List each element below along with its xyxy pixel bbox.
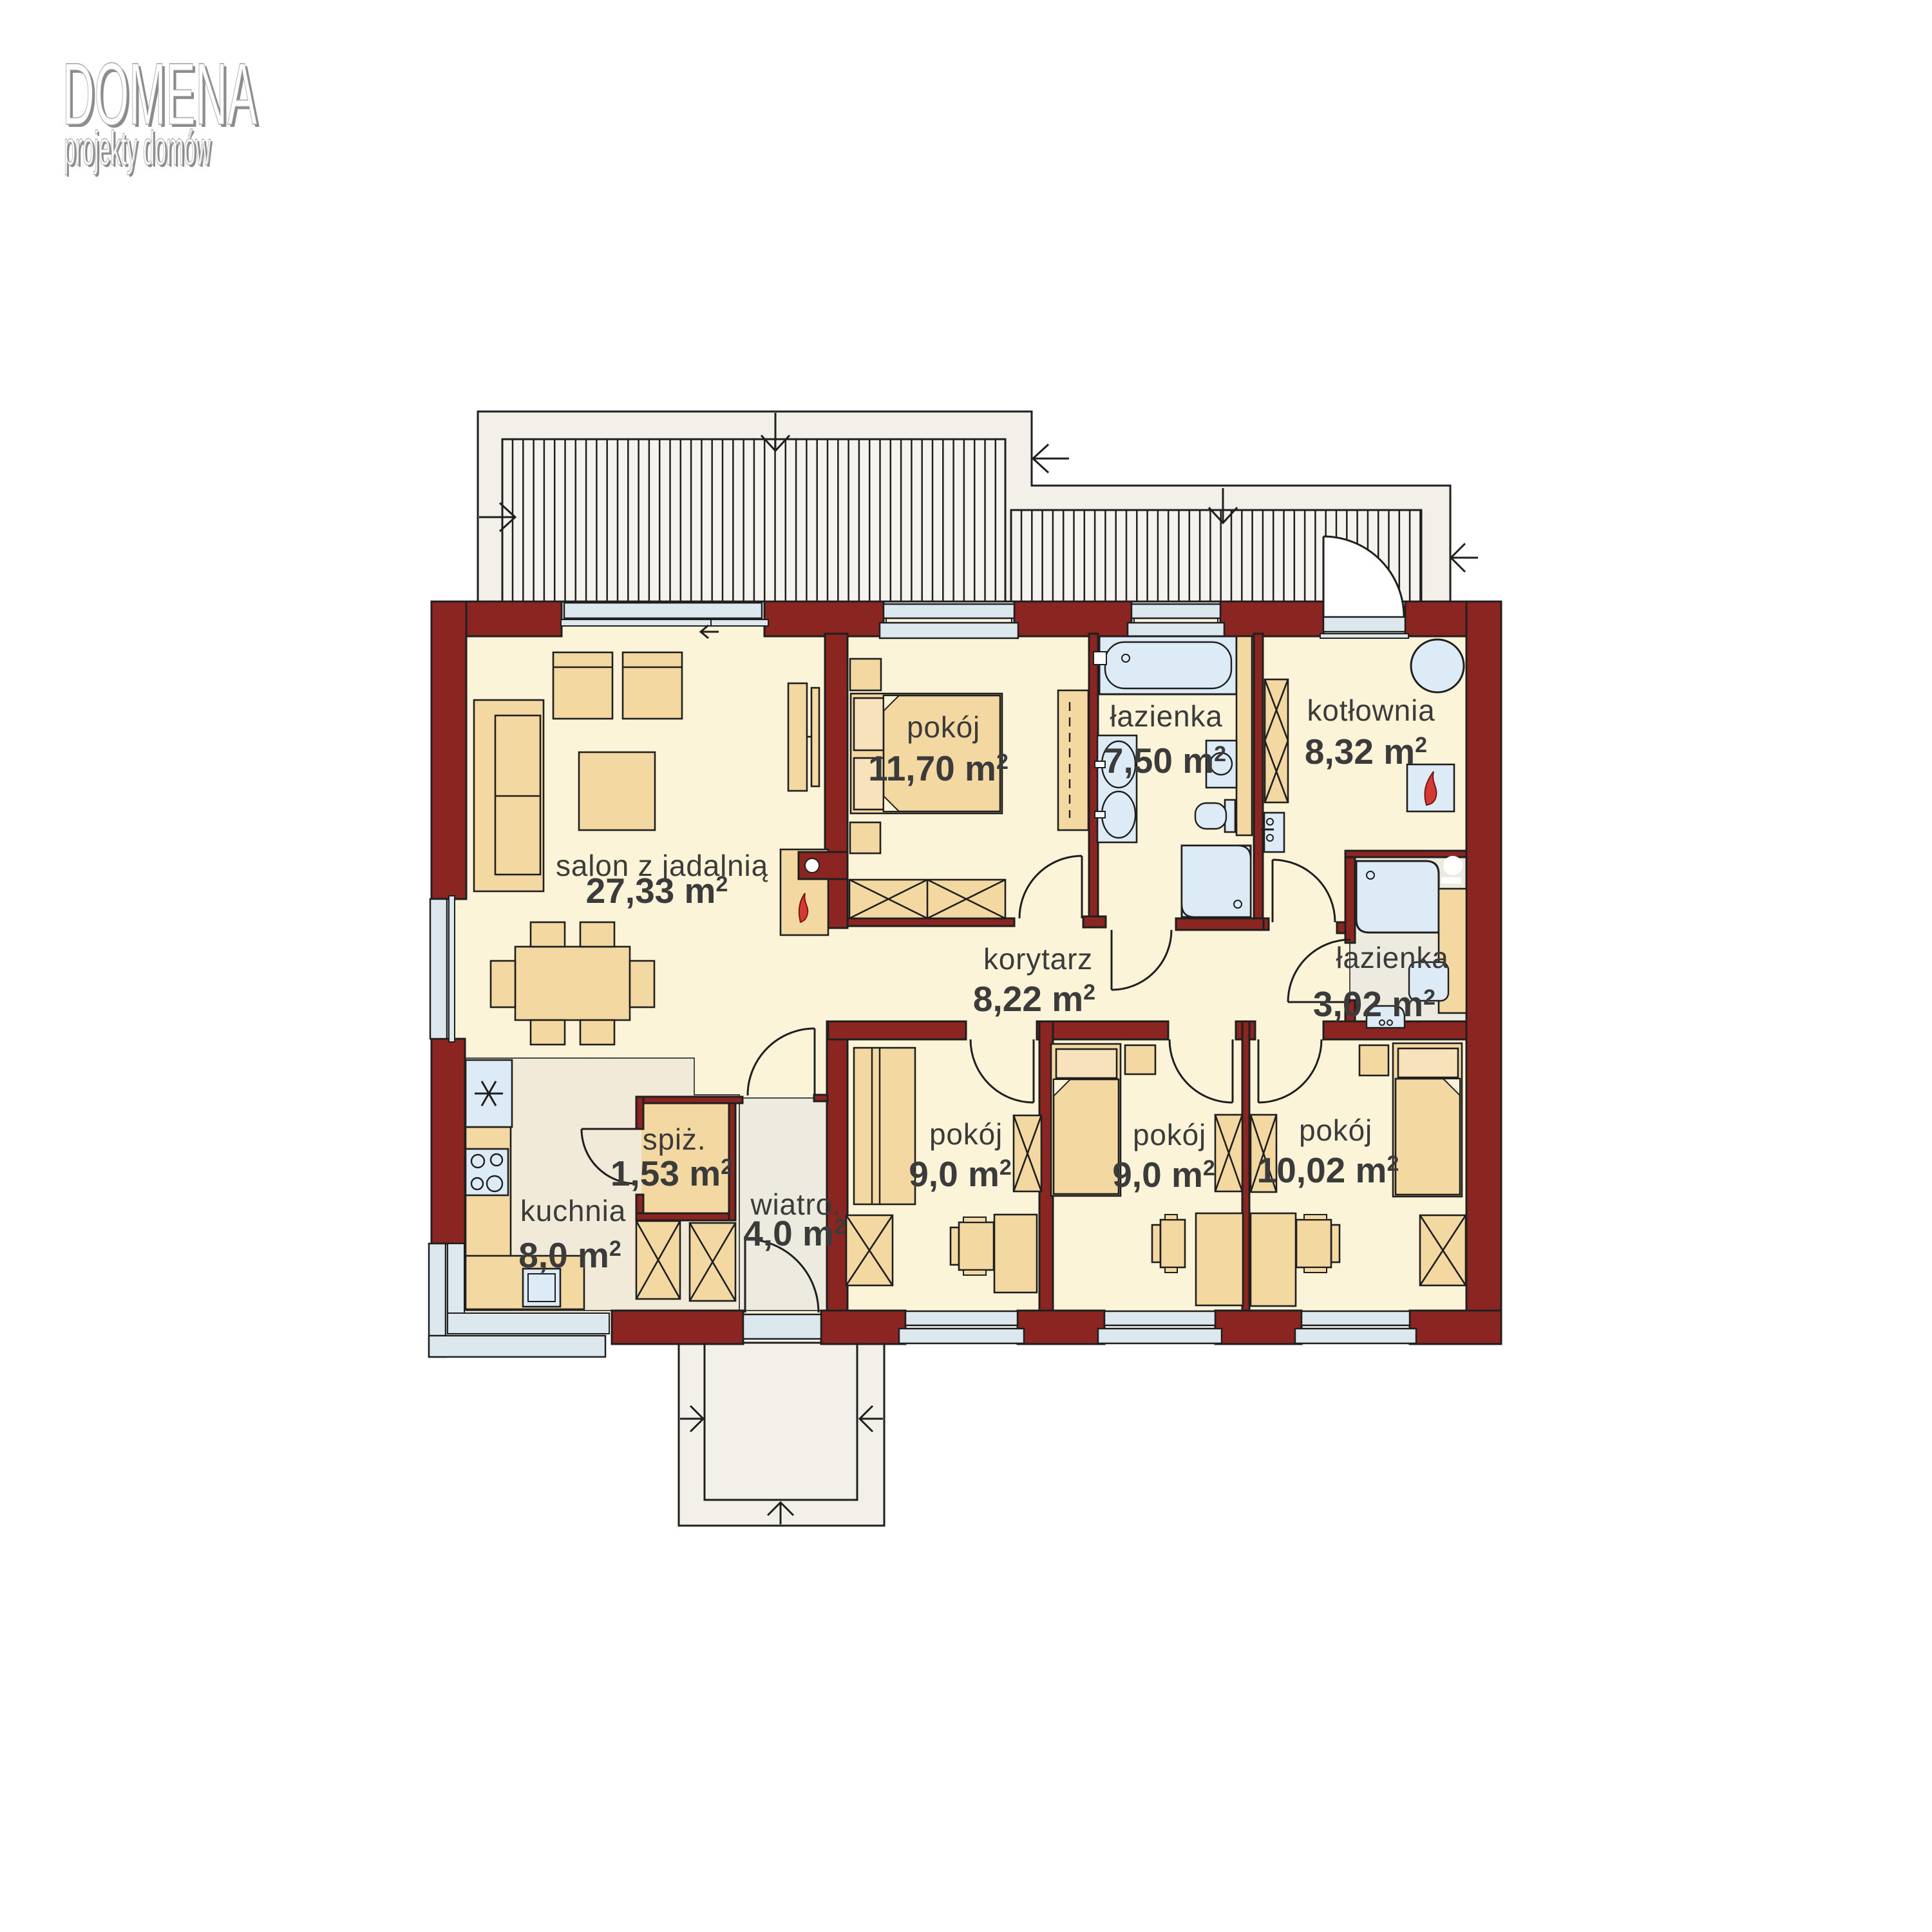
svg-text:1,53 m2: 1,53 m2	[611, 1153, 733, 1193]
svg-text:projekty domów: projekty domów	[64, 121, 211, 175]
svg-text:11,70 m2: 11,70 m2	[868, 748, 1009, 788]
svg-text:pokój: pokój	[929, 1117, 1003, 1151]
svg-text:3,02 m2: 3,02 m2	[1313, 984, 1435, 1024]
svg-text:8,32 m2: 8,32 m2	[1305, 732, 1427, 772]
svg-text:pokój: pokój	[1133, 1118, 1206, 1151]
svg-text:8,22 m2: 8,22 m2	[973, 979, 1095, 1019]
svg-text:7,50 m2: 7,50 m2	[1104, 741, 1226, 781]
svg-text:27,33 m2: 27,33 m2	[586, 871, 728, 911]
svg-text:8,0 m2: 8,0 m2	[518, 1235, 621, 1275]
svg-text:10,02 m2: 10,02 m2	[1257, 1150, 1399, 1190]
svg-text:łazienka: łazienka	[1336, 941, 1448, 974]
svg-text:spiż.: spiż.	[643, 1122, 706, 1156]
svg-text:łazienka: łazienka	[1110, 699, 1222, 733]
svg-text:pokój: pokój	[907, 710, 980, 744]
svg-text:4,0 m2: 4,0 m2	[743, 1213, 846, 1253]
svg-text:korytarz: korytarz	[983, 942, 1093, 976]
svg-text:9,0 m2: 9,0 m2	[1112, 1155, 1215, 1195]
svg-text:kotłownia: kotłownia	[1307, 694, 1435, 727]
svg-text:kuchnia: kuchnia	[520, 1194, 626, 1227]
svg-text:pokój: pokój	[1299, 1113, 1372, 1147]
svg-text:9,0 m2: 9,0 m2	[909, 1154, 1012, 1194]
